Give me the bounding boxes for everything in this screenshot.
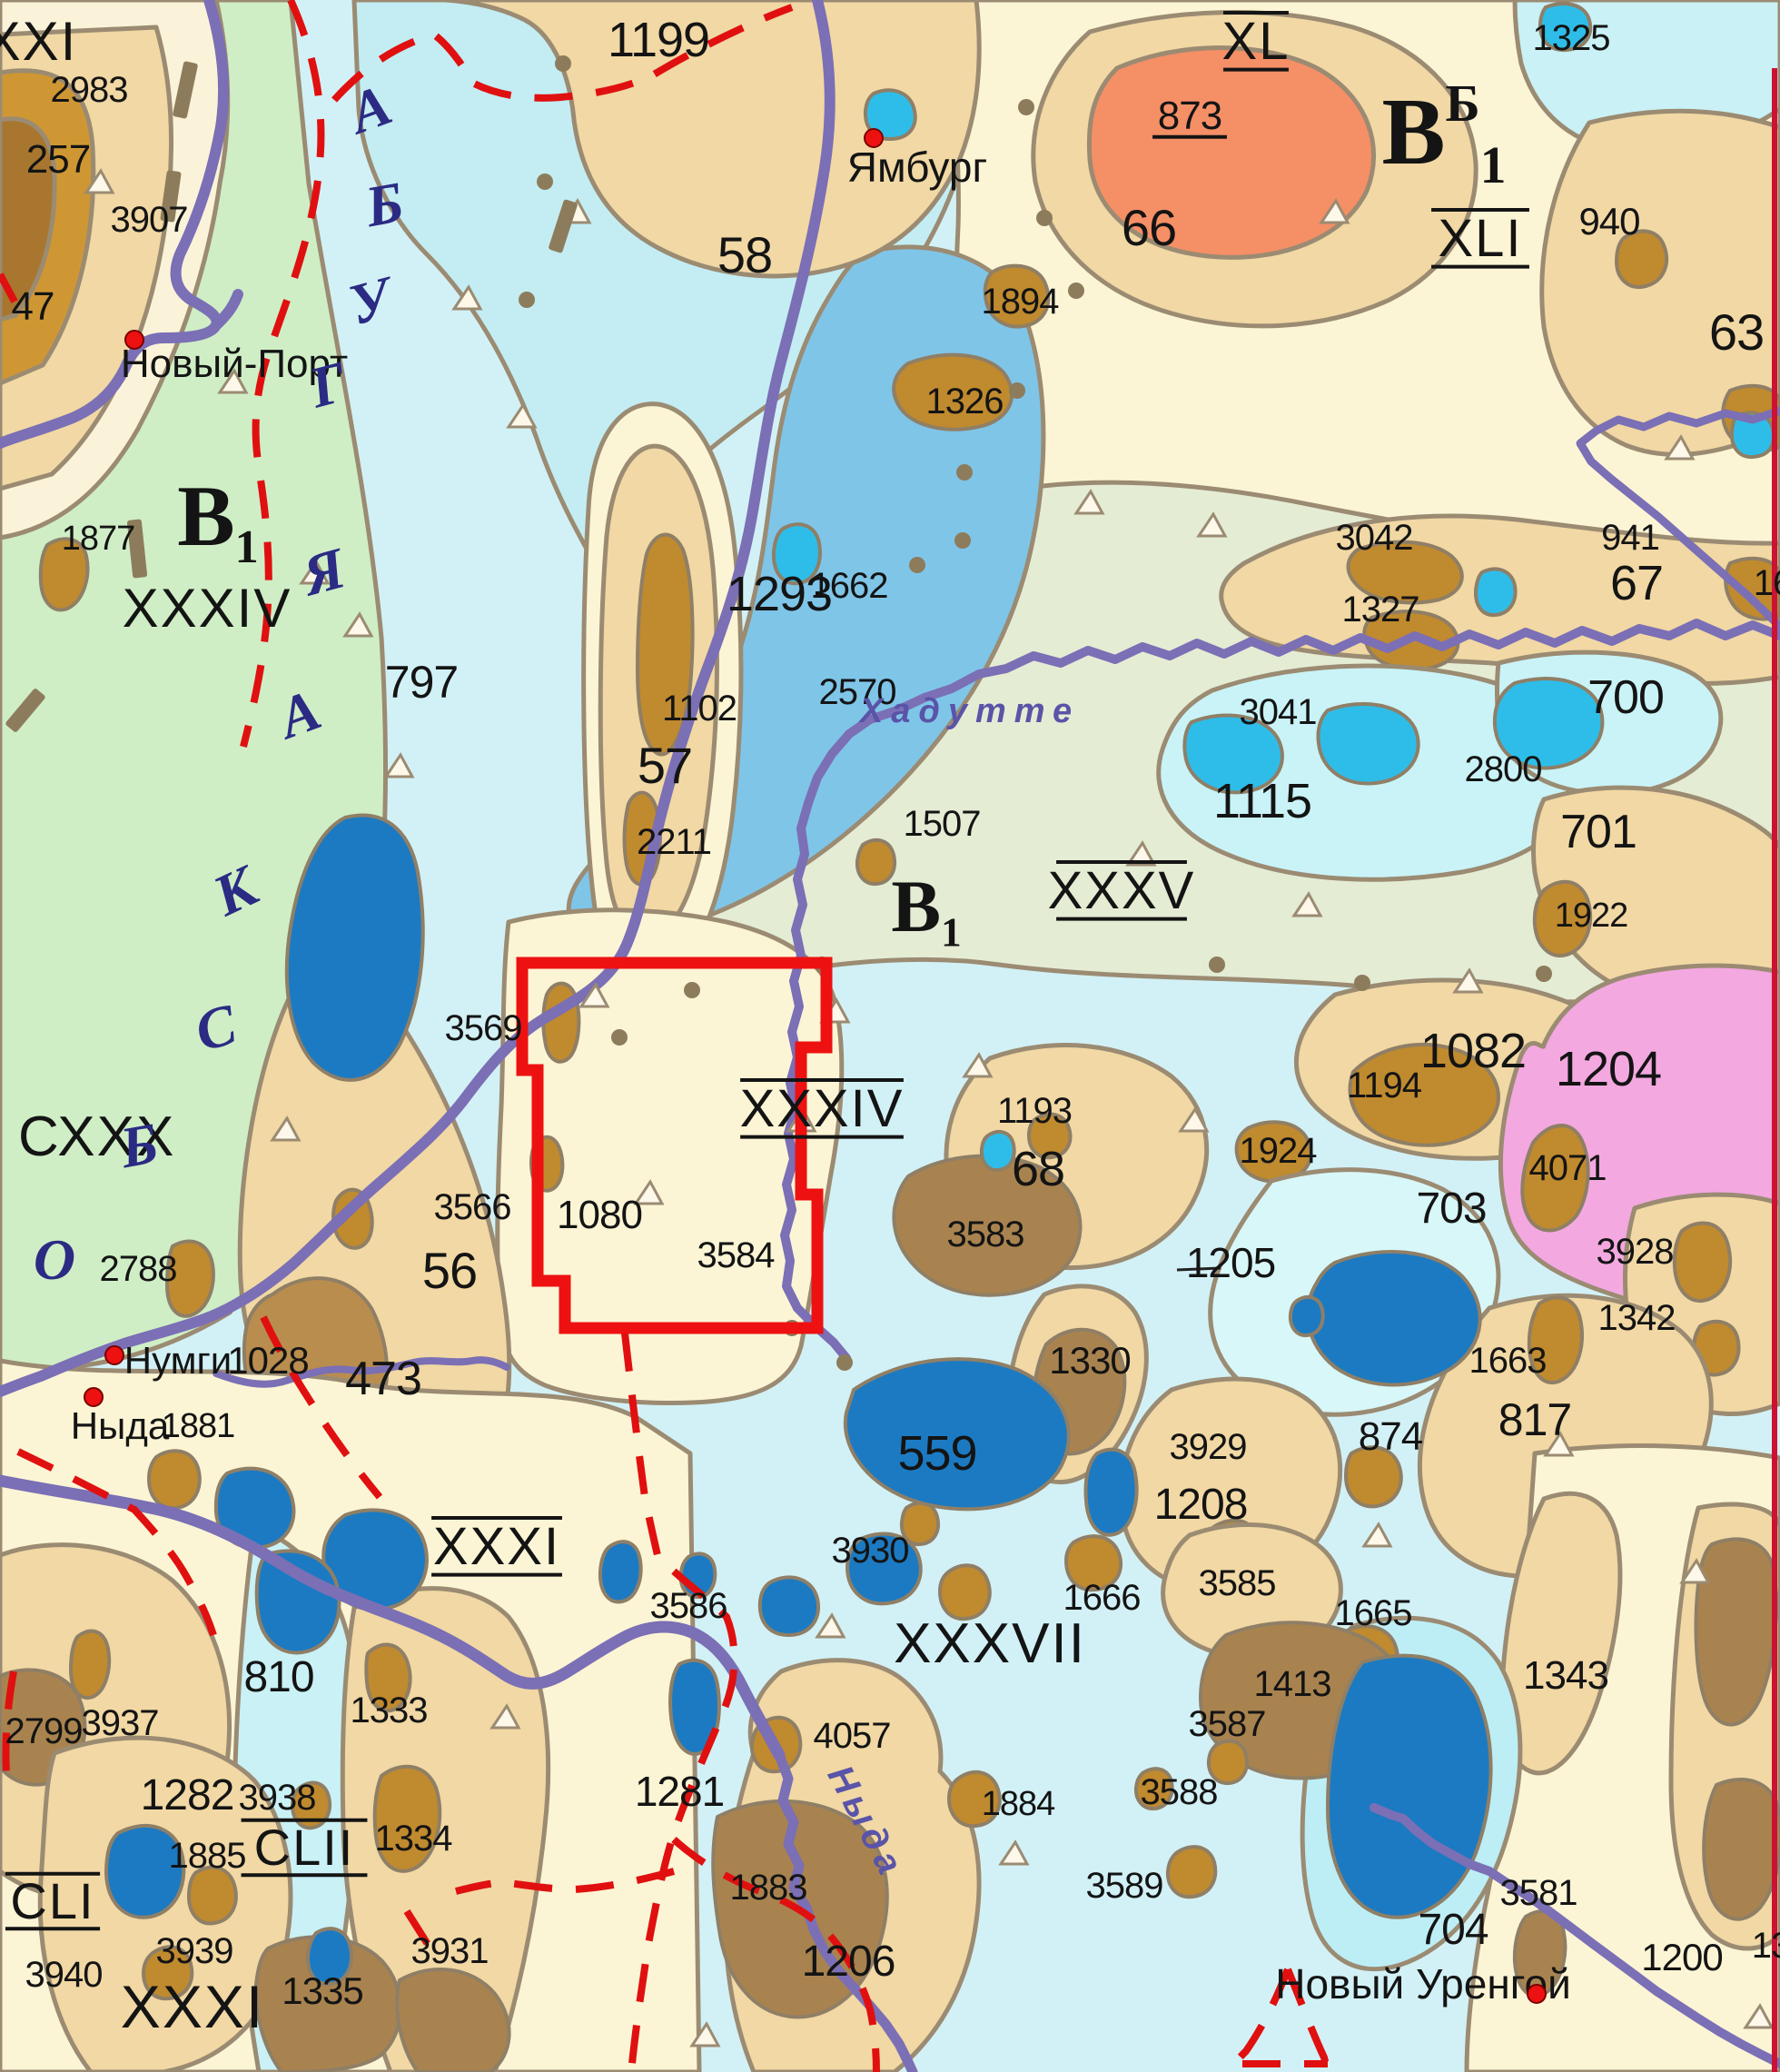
map-label: 1884 (982, 1785, 1055, 1823)
map-label: 3566 (434, 1187, 511, 1227)
lake-703 (1308, 1252, 1480, 1385)
map-label: CLII (254, 1819, 355, 1876)
map-label: 1080 (557, 1193, 642, 1237)
map-label: 3940 (25, 1955, 103, 1995)
map-label: 1102 (662, 689, 737, 729)
boundary-bead-mark (519, 292, 535, 308)
boundary-bead-mark (909, 557, 925, 573)
map-label: 3584 (697, 1235, 776, 1275)
boundary-bead-mark (537, 173, 553, 190)
map-label: 1883 (730, 1868, 807, 1908)
map-label: 57 (638, 737, 692, 794)
map-label: 2799 (5, 1711, 83, 1751)
map-label: У (342, 263, 404, 338)
settlement-dot (1528, 1985, 1546, 2003)
boundary-bead-mark (956, 464, 973, 481)
map-label: 67 (1610, 556, 1663, 610)
map-label: 1082 (1420, 1024, 1526, 1078)
map-label: 16 (1754, 563, 1780, 603)
map-label: XXXIV (123, 578, 292, 639)
map-label: 1200 (1641, 1936, 1722, 1978)
boundary-bead-mark (836, 1354, 853, 1371)
map-label: 1894 (982, 282, 1060, 322)
map-label: 3581 (1500, 1873, 1577, 1913)
map-label: 1662 (811, 566, 888, 606)
map-stage: XXI2983257390747Новый-ПортB1XXXIV1877119… (0, 0, 1780, 2072)
boundary-triangle-mark (386, 755, 412, 777)
map-label: 3928 (1597, 1232, 1674, 1272)
settlement-dot (105, 1346, 124, 1364)
map-label: 1193 (997, 1091, 1072, 1131)
map-label: 1330 (1049, 1339, 1130, 1382)
boundary-triangle-mark (1364, 1524, 1390, 1546)
boundary-bead-mark (684, 982, 700, 998)
map-label: 941 (1601, 518, 1659, 558)
map-label: XXXV (1048, 861, 1196, 920)
map-label: 3586 (650, 1586, 727, 1626)
settlement-dot (865, 129, 883, 147)
map-label: 1325 (1533, 18, 1610, 58)
map-label: XLI (1438, 209, 1522, 268)
geological-map: XXI2983257390747Новый-ПортB1XXXIV1877119… (0, 0, 1780, 2072)
map-label: 559 (897, 1426, 976, 1481)
map-label: 1333 (351, 1690, 428, 1730)
map-label: XXI (0, 11, 77, 72)
map-label: 1326 (926, 382, 1004, 421)
map-label: 1282 (141, 1771, 234, 1819)
map-label: XXXVII (894, 1612, 1086, 1675)
map-label: 1922 (1555, 897, 1628, 935)
map-label: 1507 (904, 804, 981, 844)
boundary-bead-mark (1354, 975, 1370, 991)
map-label: 817 (1498, 1394, 1571, 1445)
map-label: 1028 (227, 1339, 308, 1382)
map-label: 1115 (1213, 774, 1311, 828)
map-label: XXXIV (740, 1079, 905, 1138)
map-label: 68 (1012, 1142, 1064, 1196)
settlement-label: Новый Уренгой (1275, 1960, 1571, 2008)
map-label: 1335 (282, 1969, 362, 2012)
boundary-triangle-mark (1001, 1842, 1027, 1864)
map-label: О (34, 1227, 75, 1292)
boundary-bead-mark (1209, 957, 1225, 973)
boundary-bead-mark (1009, 382, 1025, 399)
map-label: 3937 (82, 1703, 159, 1743)
map-label: 1199 (608, 13, 709, 67)
map-label: 3588 (1141, 1772, 1218, 1812)
map-label: 703 (1416, 1185, 1486, 1233)
map-label: 1194 (1347, 1066, 1422, 1105)
map-label: 2983 (51, 70, 128, 110)
map-label: 1885 (169, 1836, 246, 1876)
boundary-bead-mark (1536, 966, 1552, 982)
map-label: 473 (345, 1353, 421, 1405)
map-label: 2800 (1465, 749, 1542, 789)
map-label: 1877 (62, 520, 135, 558)
map-label: 4071 (1529, 1148, 1607, 1188)
map-label: 701 (1560, 806, 1637, 858)
map-label: 2211 (637, 822, 711, 862)
map-label: 1208 (1154, 1481, 1248, 1529)
map-label: 1343 (1523, 1653, 1608, 1698)
settlement-label: Ныда (71, 1404, 170, 1447)
boundary-triangle-mark (817, 1615, 844, 1637)
boundary-bead-mark (611, 1029, 628, 1046)
map-label: 56 (422, 1242, 477, 1299)
map-label: 873 (1158, 94, 1221, 138)
map-label: 66 (1122, 199, 1176, 256)
settlement-dot (125, 331, 143, 349)
map-label: 1881 (162, 1407, 235, 1445)
map-label: XXXI (433, 1517, 560, 1576)
map-label: 3907 (111, 200, 188, 240)
map-label: 1334 (375, 1819, 453, 1859)
map-label: 704 (1418, 1906, 1488, 1954)
settlement-label: Нумги (124, 1339, 232, 1382)
map-label: 1206 (802, 1938, 895, 1986)
map-label: 3585 (1199, 1563, 1276, 1603)
map-label: 3938 (239, 1778, 316, 1818)
map-label: 3930 (832, 1531, 909, 1571)
map-label: 3569 (445, 1008, 522, 1048)
map-label: CLI (10, 1872, 94, 1929)
map-label: XL (1222, 12, 1290, 71)
map-label: 1665 (1335, 1593, 1412, 1633)
map-label: 3589 (1086, 1866, 1163, 1906)
map-label: 3929 (1170, 1427, 1247, 1467)
river-label: Хадутте (858, 692, 1080, 730)
map-label: 58 (717, 226, 772, 283)
map-label: 1281 (635, 1768, 724, 1815)
map-label: 3931 (411, 1931, 489, 1971)
map-label: 1663 (1469, 1341, 1547, 1381)
map-label: 63 (1709, 303, 1764, 361)
map-label: 3041 (1240, 692, 1317, 732)
map-label: 700 (1587, 671, 1664, 724)
map-label: 1205 (1186, 1239, 1275, 1286)
map-label: 13 (1752, 1926, 1780, 1966)
settlement-dot (84, 1388, 103, 1406)
map-label: 1342 (1598, 1298, 1676, 1338)
boundary-bead-mark (1018, 99, 1034, 115)
map-label: 47 (12, 284, 54, 329)
map-label: 3587 (1189, 1704, 1266, 1744)
map-label: 940 (1578, 200, 1639, 243)
boundary-bead-mark (1036, 210, 1053, 226)
map-label: 874 (1359, 1414, 1423, 1459)
map-label: 3583 (947, 1214, 1024, 1254)
map-label: 2788 (100, 1249, 177, 1289)
map-label: 1327 (1342, 590, 1419, 630)
map-label: 4057 (814, 1716, 891, 1756)
map-label: 797 (385, 657, 458, 708)
settlement-label: Ямбург (847, 144, 988, 191)
boundary-bead-mark (954, 532, 971, 549)
boundary-bead-mark (555, 55, 571, 72)
map-label: 1924 (1240, 1131, 1318, 1171)
map-label: 1204 (1556, 1042, 1661, 1096)
map-label: 1413 (1254, 1664, 1331, 1704)
map-label: 257 (26, 137, 90, 182)
map-label: 3939 (156, 1931, 233, 1971)
map-label: XXXI (121, 1973, 264, 2040)
map-label: 810 (243, 1653, 313, 1701)
map-label: 3042 (1336, 518, 1413, 558)
boundary-bead-mark (1068, 283, 1084, 299)
